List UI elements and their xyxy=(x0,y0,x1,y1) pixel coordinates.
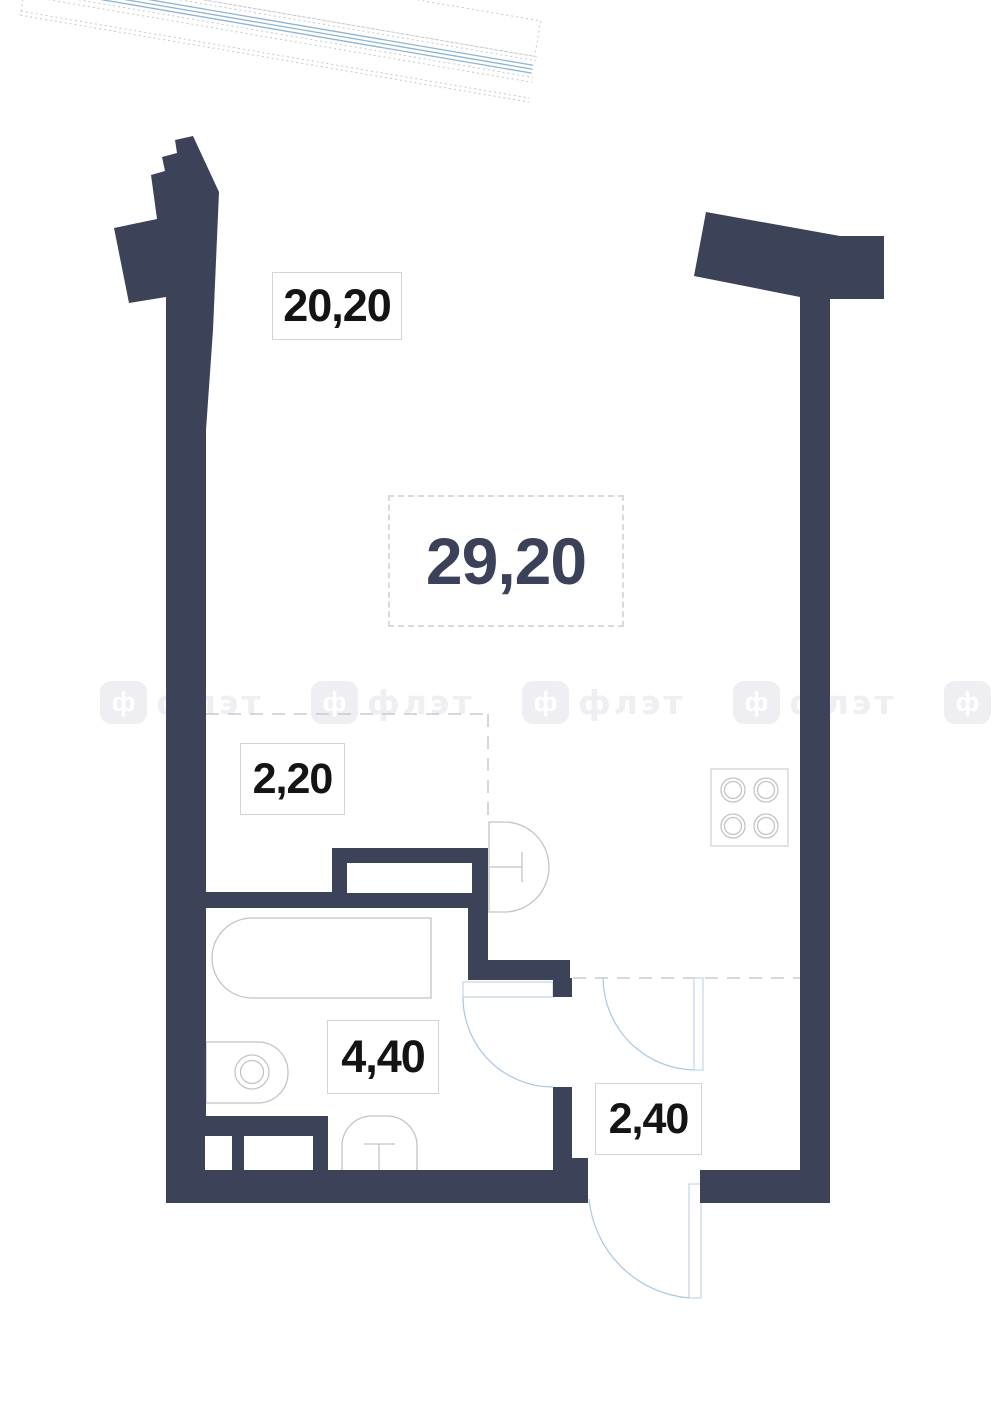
shaft-niche xyxy=(205,1136,232,1170)
washbasin xyxy=(206,1042,288,1103)
cooktop xyxy=(711,769,788,846)
room-door-leaf xyxy=(694,978,703,1070)
right-wall xyxy=(694,212,884,1203)
bottom-wall xyxy=(700,1170,830,1203)
wardrobe-niche xyxy=(347,863,472,893)
bathroom-top-wall xyxy=(206,892,332,908)
floor-plan-drawing xyxy=(0,0,995,1406)
shaft-niche xyxy=(244,1136,313,1170)
room-door-arc xyxy=(603,978,694,1070)
total-area-label: 29,20 xyxy=(388,495,624,627)
bathroom-door-jamb xyxy=(553,978,572,997)
bathroom-door-jamb xyxy=(553,1087,572,1172)
entrance-door-arc xyxy=(589,1199,689,1298)
left-wall xyxy=(114,136,219,1203)
floor-plan-canvas: ф флэт ф флэт ф флэт ф флэт ф флэт xyxy=(0,0,995,1406)
bathroom-door-leaf xyxy=(463,982,553,997)
wardrobe-nook-area-label: 2,20 xyxy=(240,743,345,815)
bathroom-door-arc xyxy=(463,997,553,1087)
window-glass-lines xyxy=(27,0,533,73)
living-room-area-label: 20,20 xyxy=(272,272,402,340)
entrance-door-leaf xyxy=(689,1184,701,1298)
entry-hall-area-label: 2,40 xyxy=(595,1083,702,1155)
bathtub xyxy=(212,918,431,998)
bathroom-area-label: 4,40 xyxy=(327,1020,439,1094)
window-glazing xyxy=(0,0,543,102)
bathroom-bottom-wall xyxy=(468,960,570,980)
